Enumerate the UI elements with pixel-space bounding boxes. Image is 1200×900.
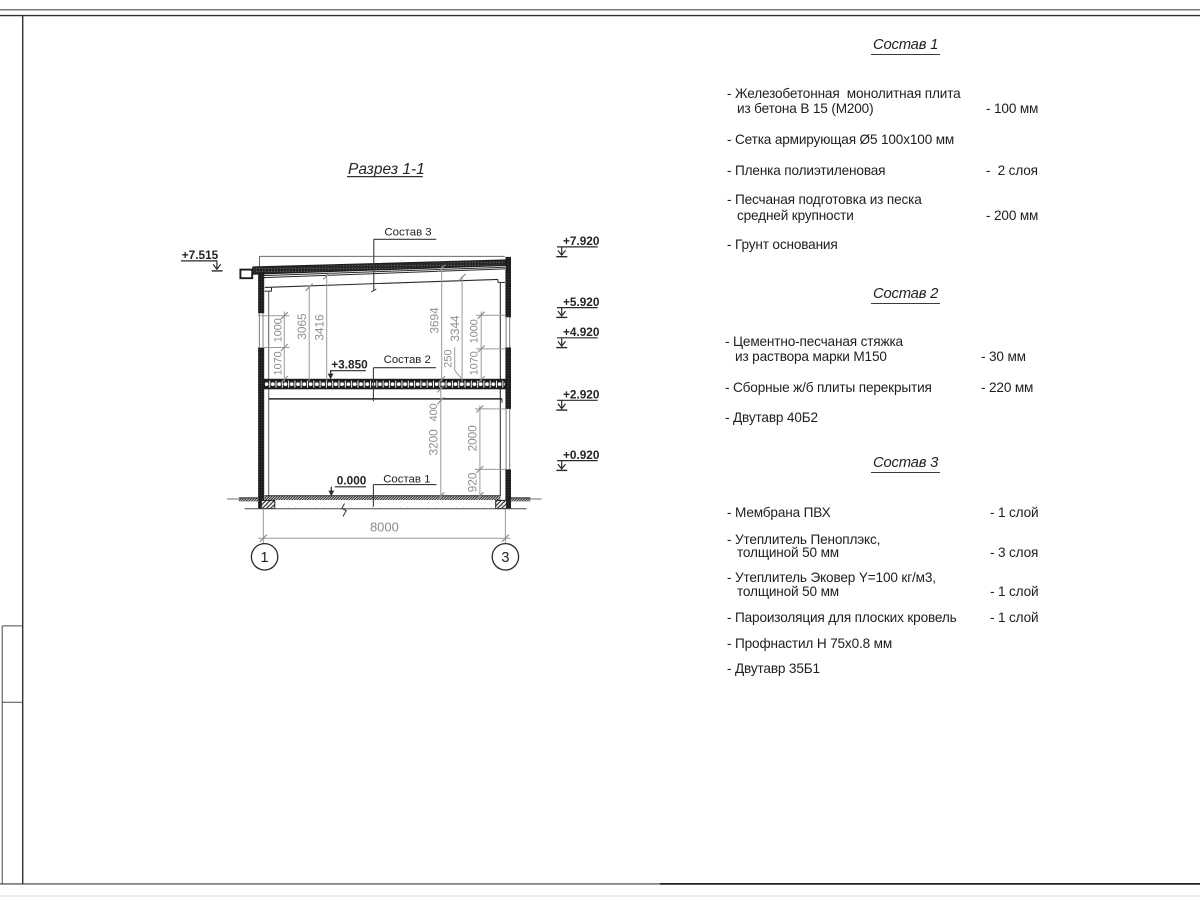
svg-text:+7.920: +7.920 bbox=[563, 234, 600, 248]
svg-text:Состав 1: Состав 1 bbox=[383, 473, 430, 485]
svg-text:1070: 1070 bbox=[272, 351, 284, 375]
svg-text:1000: 1000 bbox=[469, 319, 481, 343]
svg-text:+2.920: +2.920 bbox=[563, 388, 600, 402]
svg-text:8000: 8000 bbox=[370, 519, 399, 534]
svg-text:3694: 3694 bbox=[427, 307, 441, 334]
svg-text:1070: 1070 bbox=[469, 351, 481, 375]
svg-text:+3.850: +3.850 bbox=[331, 357, 368, 371]
svg-text:250: 250 bbox=[442, 349, 454, 367]
svg-text:2000: 2000 bbox=[466, 425, 480, 452]
svg-text:Разрез 1-1: Разрез 1-1 bbox=[348, 161, 425, 178]
svg-text:3065: 3065 bbox=[295, 313, 309, 340]
svg-text:3344: 3344 bbox=[448, 315, 462, 342]
svg-text:3200: 3200 bbox=[426, 429, 440, 456]
svg-text:1: 1 bbox=[261, 550, 269, 566]
svg-text:1000: 1000 bbox=[272, 318, 284, 342]
svg-text:3416: 3416 bbox=[313, 314, 327, 341]
svg-text:920: 920 bbox=[466, 472, 480, 492]
svg-text:+4.920: +4.920 bbox=[563, 325, 600, 339]
svg-text:Состав 2: Состав 2 bbox=[384, 354, 431, 366]
svg-text:3: 3 bbox=[501, 550, 509, 566]
svg-text:+0.920: +0.920 bbox=[563, 448, 600, 462]
svg-text:400: 400 bbox=[428, 403, 440, 421]
svg-text:+5.920: +5.920 bbox=[563, 295, 600, 309]
svg-text:Состав 3: Состав 3 bbox=[384, 227, 431, 239]
svg-text:+7.515: +7.515 bbox=[182, 248, 219, 262]
svg-text:0.000: 0.000 bbox=[337, 474, 367, 488]
